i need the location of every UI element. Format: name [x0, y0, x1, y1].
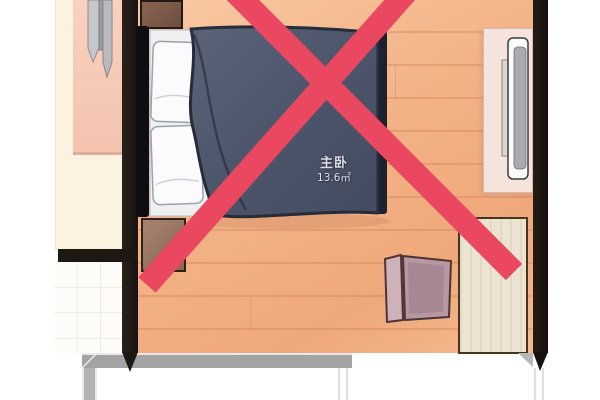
nightstand-top	[140, 0, 183, 29]
wardrobe-cabinet-left	[73, 0, 122, 155]
door-frame-line	[338, 368, 340, 400]
door-frame-line	[346, 368, 348, 400]
tile-grid-line	[55, 338, 122, 339]
tile-grid-line	[77, 262, 78, 354]
wall-left	[122, 0, 138, 353]
tv-cabinet	[483, 28, 533, 193]
plank-seam	[285, 99, 286, 132]
wall-bottom-gray	[82, 353, 352, 368]
wall-right	[533, 0, 548, 353]
wall-right-gray-tip	[518, 353, 533, 367]
room-area-label: 13.6㎡	[300, 172, 368, 184]
tile-grid-line	[55, 287, 122, 288]
tile-grid-line	[55, 312, 122, 313]
wall-stub-left	[58, 249, 138, 262]
nightstand-bottom	[141, 218, 186, 272]
room-name-label: 主卧	[300, 157, 368, 172]
floor-plan-canvas: 主卧 13.6㎡	[0, 0, 600, 400]
door-frame-line	[542, 368, 544, 400]
plank-seam	[395, 66, 396, 99]
room-label: 主卧 13.6㎡	[300, 157, 368, 184]
wall-bottom-corner	[82, 368, 97, 400]
plank-seam	[250, 297, 251, 330]
tile-grid-line	[100, 262, 101, 354]
tiled-floor-area	[55, 262, 122, 354]
door-leaf	[458, 217, 528, 354]
door-frame-line	[534, 368, 536, 400]
